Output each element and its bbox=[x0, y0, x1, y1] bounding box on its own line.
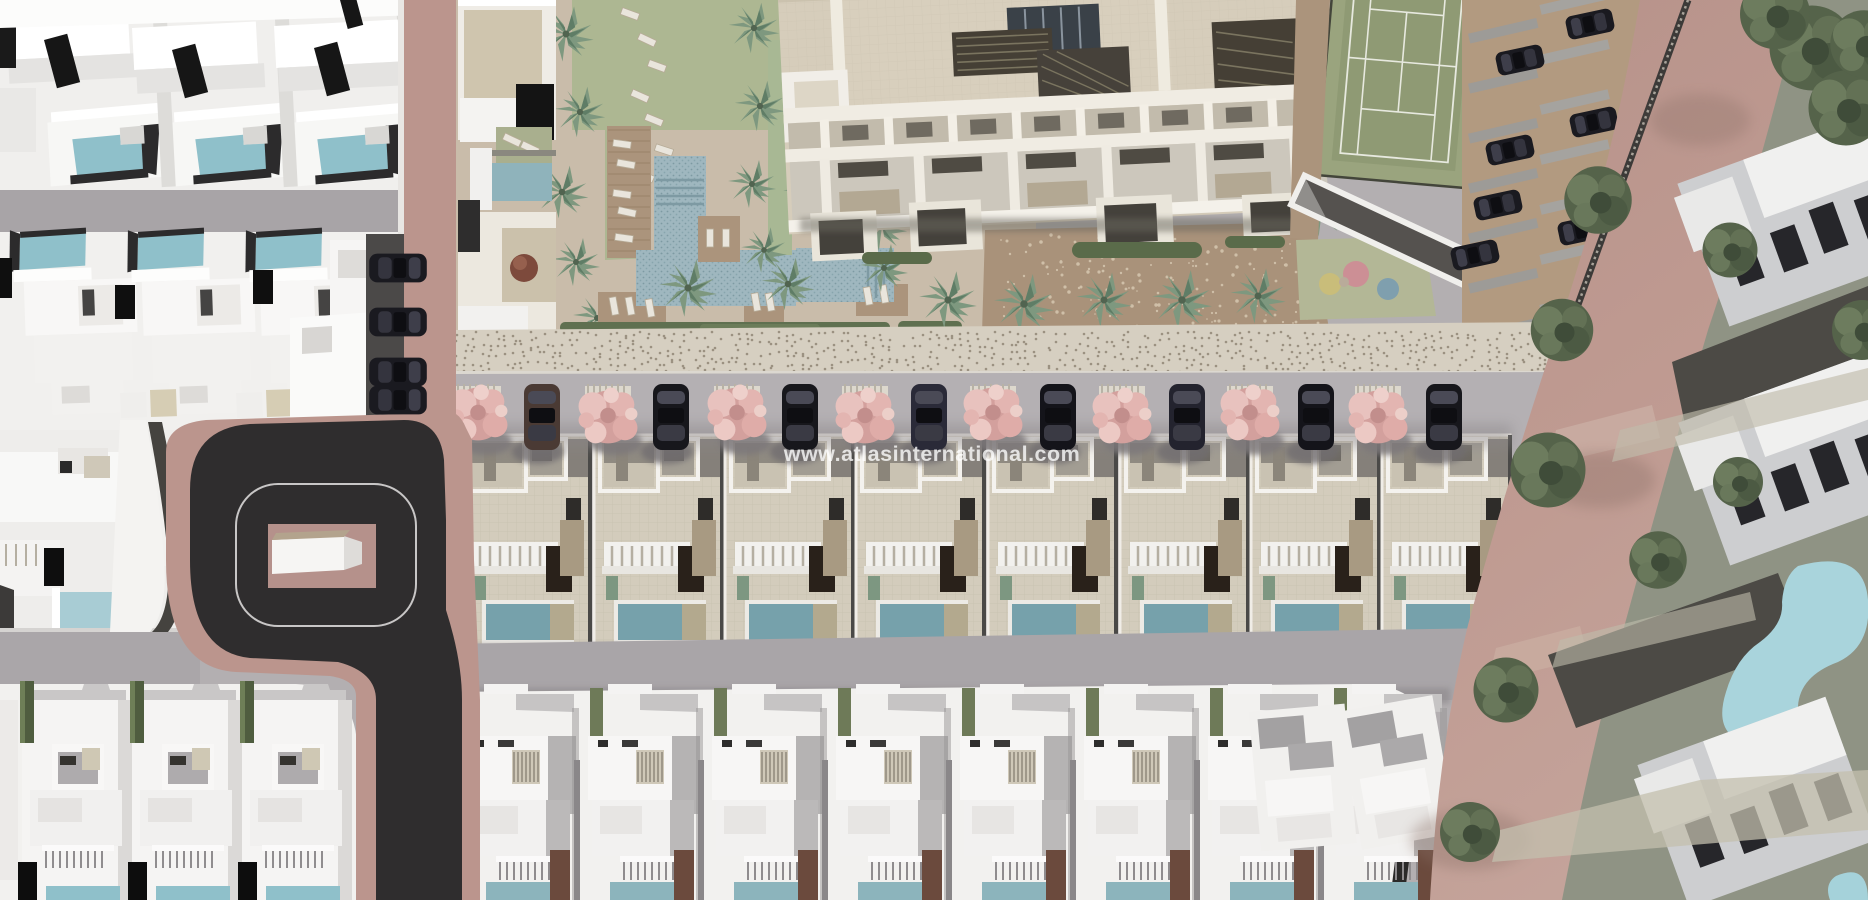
svg-text:www.atlasinternational.com: www.atlasinternational.com bbox=[783, 442, 1081, 466]
